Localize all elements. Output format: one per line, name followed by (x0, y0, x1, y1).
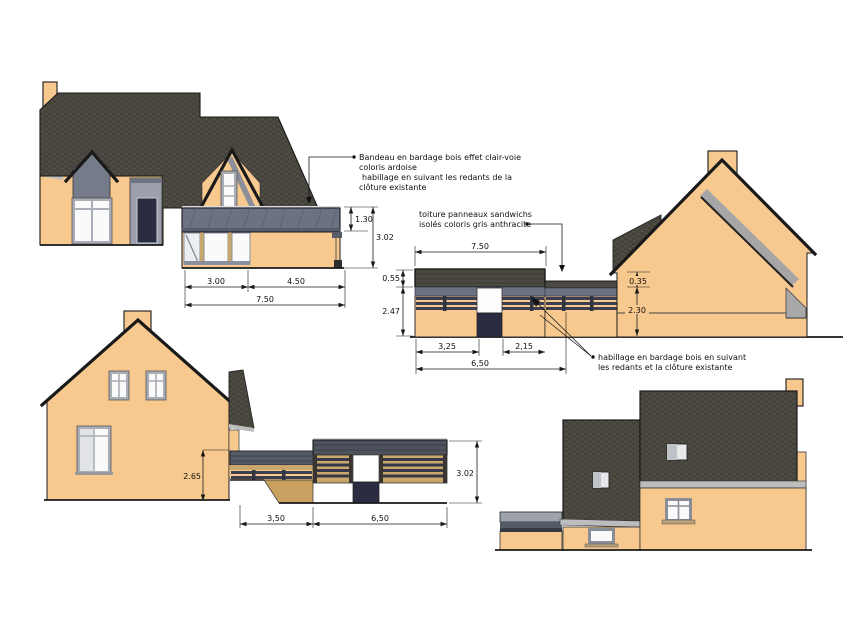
timber-post (200, 233, 204, 264)
basement-window (585, 528, 618, 547)
upper-window-left (109, 371, 129, 400)
leader-arrowhead (559, 265, 565, 272)
extension-roof-mid (500, 522, 562, 528)
main-roof (640, 391, 797, 483)
architectural-drawing: 1.30 3.02 3.00 4.50 7.50 Bandeau en bard… (0, 0, 854, 623)
leader-bullet (352, 155, 355, 158)
dim-roof-thickness: 0.55 (382, 274, 400, 283)
dim-right-width: 2,15 (515, 342, 533, 351)
annotation-bandeau: Bandeau en bardage bois effet clair-voie… (306, 153, 521, 204)
gate-lower-panel (353, 482, 379, 503)
side-elevation-view (42, 311, 447, 503)
front-elevation-view (40, 82, 344, 268)
annotation-text: habillage en suivant les redants de la (362, 173, 512, 182)
dim-total-height: 3.02 (456, 469, 474, 478)
rear-elevation-view (495, 379, 812, 550)
extension-window-2 (204, 233, 228, 264)
annotation-text: Bandeau en bardage bois effet clair-voie (359, 153, 521, 162)
entry-canopy (130, 178, 162, 183)
annotation-text: toiture panneaux sandwichs (419, 210, 532, 219)
annotation-text: clôture existante (359, 182, 426, 192)
dim-height: 2.65 (183, 472, 201, 481)
connector-slate-band (545, 288, 618, 296)
dim-top-width: 7.50 (471, 242, 489, 251)
rear-extension (500, 512, 562, 550)
dim-left-width: 3,25 (438, 342, 456, 351)
annotation-text: habillage en bardage bois en suivant (598, 353, 746, 362)
bandeau-lower-edge (182, 228, 340, 232)
main-gutter (640, 481, 806, 488)
gate-panel (477, 288, 502, 313)
extension-wall (500, 531, 562, 550)
extension-roof-dark (500, 528, 562, 532)
annotation-text: isolés coloris gris anthracite (419, 219, 531, 229)
dim-left-width: 3.00 (207, 277, 225, 286)
dim-gable-wall: 2.30 (628, 306, 646, 315)
dim-total-height: 3.02 (376, 233, 394, 242)
extension-roof-band (313, 440, 447, 455)
mid-roof (563, 420, 640, 522)
leader-line (529, 224, 562, 266)
entry-door (137, 198, 157, 243)
dim-band-height: 1.30 (355, 215, 373, 224)
dim-right-width: 6,50 (371, 514, 389, 523)
sloped-ground (264, 480, 313, 503)
connector-roof-band (545, 281, 618, 288)
connector-slats (546, 296, 617, 311)
corner-plinth (334, 260, 342, 268)
annotation-toiture: toiture panneaux sandwichs isolés colori… (419, 210, 565, 272)
leader-line (309, 157, 352, 197)
sandwich-panel-roof (415, 269, 545, 287)
roof-window-left (593, 472, 609, 488)
dim-right-width: 4.50 (287, 277, 305, 286)
fence-slats-a (230, 470, 313, 480)
extension-low-roof-band (230, 451, 313, 465)
leader-bullet (525, 222, 528, 225)
elevations-canvas: 1.30 3.02 3.00 4.50 7.50 Bandeau en bard… (0, 0, 854, 623)
upper-window-right (146, 371, 166, 400)
extension-window-3 (232, 233, 250, 264)
narrow-window-glass (224, 174, 234, 206)
rear-roof (229, 370, 254, 428)
gate-panel (353, 455, 379, 482)
french-door (75, 426, 113, 475)
rear-window (662, 498, 695, 524)
bandeau-return (332, 232, 342, 238)
leader-bullet (591, 355, 594, 358)
annotation-text: coloris ardoise (359, 163, 417, 172)
dim-gable-band: 0.35 (629, 277, 647, 286)
gate-lower-panel (477, 313, 502, 337)
timber-rail (230, 465, 313, 470)
dim-total-width: 7.50 (256, 295, 274, 304)
annotation-text: les redants et la clôture existante (598, 362, 733, 372)
dim-fence-height: 2.47 (382, 307, 400, 316)
dim-total-width: 6,50 (471, 359, 489, 368)
timber-post (228, 233, 232, 264)
extension-roof-light (500, 512, 562, 522)
dim-left-width: 3,50 (267, 514, 285, 523)
main-wall (640, 488, 806, 550)
extension-base-rail (184, 261, 250, 265)
roof-window-right (667, 444, 687, 460)
